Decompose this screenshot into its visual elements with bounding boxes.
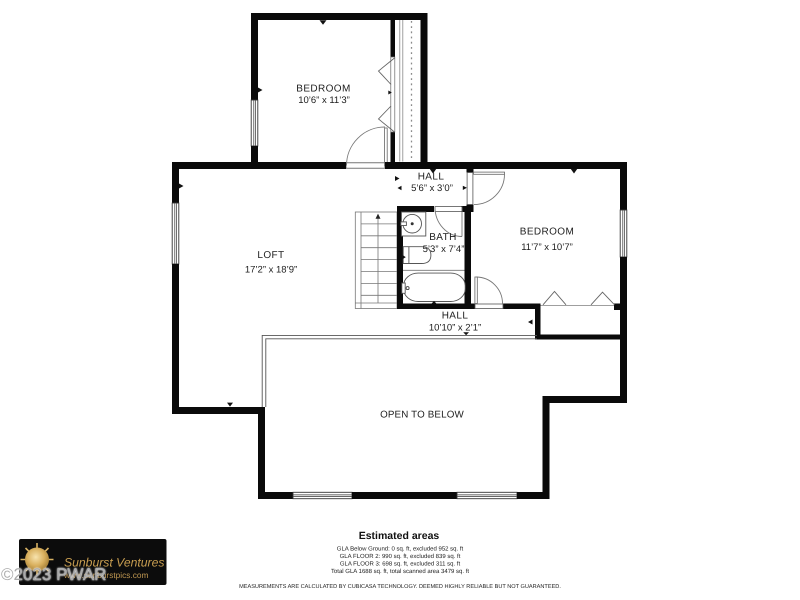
svg-text:BEDROOM: BEDROOM	[520, 227, 574, 238]
svg-text:MEASUREMENTS ARE CALCULATED BY: MEASUREMENTS ARE CALCULATED BY CUBICASA …	[239, 584, 561, 590]
svg-text:Estimated areas: Estimated areas	[359, 530, 440, 542]
svg-text:10’6” x 11’3”: 10’6” x 11’3”	[298, 95, 350, 106]
svg-text:17’2” x 18’9”: 17’2” x 18’9”	[245, 265, 297, 276]
svg-text:5’3” x 7’4”: 5’3” x 7’4”	[423, 244, 465, 255]
svg-text:OPEN TO BELOW: OPEN TO BELOW	[380, 410, 464, 421]
svg-text:5’6” x 3’0”: 5’6” x 3’0”	[411, 183, 453, 194]
svg-text:BEDROOM: BEDROOM	[296, 84, 350, 95]
svg-text:Total GLA 1688 sq. ft, total s: Total GLA 1688 sq. ft, total scanned are…	[331, 568, 469, 575]
svg-text:HALL: HALL	[442, 311, 469, 322]
svg-text:11’7” x 10’7”: 11’7” x 10’7”	[521, 242, 573, 253]
svg-text:BATH: BATH	[429, 232, 457, 243]
svg-text:LOFT: LOFT	[257, 250, 284, 261]
svg-text:GLA FLOOR 2: 990 sq. ft, exclu: GLA FLOOR 2: 990 sq. ft, excluded 839 sq…	[340, 553, 461, 560]
svg-text:©2023 PWAR: ©2023 PWAR	[1, 565, 106, 584]
svg-text:GLA FLOOR 3: 698 sq. ft, exclu: GLA FLOOR 3: 698 sq. ft, excluded 311 sq…	[340, 561, 461, 568]
svg-text:GLA Below Ground: 0 sq. ft, ex: GLA Below Ground: 0 sq. ft, excluded 952…	[337, 546, 464, 553]
svg-text:10’10” x 2’1”: 10’10” x 2’1”	[429, 323, 481, 334]
svg-text:HALL: HALL	[418, 172, 445, 183]
